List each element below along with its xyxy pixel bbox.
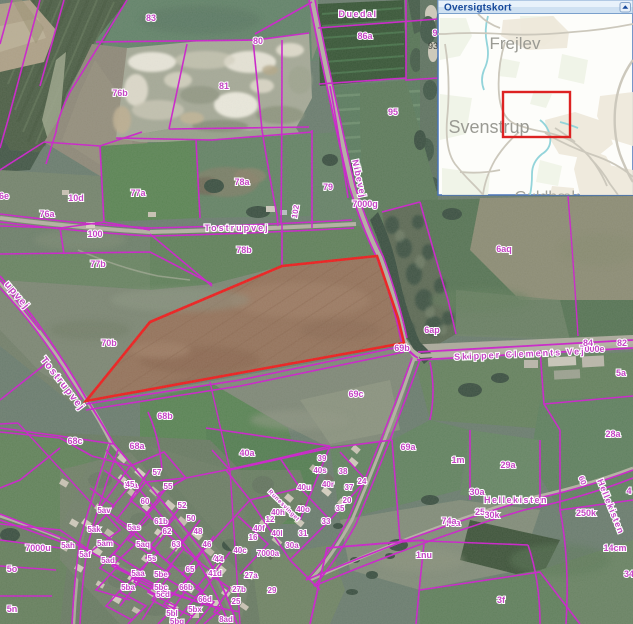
svg-text:7000a: 7000a (257, 549, 280, 558)
svg-text:14cm: 14cm (603, 543, 626, 553)
svg-text:81: 81 (219, 81, 229, 91)
svg-text:68b: 68b (157, 411, 173, 421)
svg-text:6aq: 6aq (496, 244, 512, 254)
svg-text:Duedal: Duedal (338, 9, 377, 19)
svg-text:68a: 68a (129, 441, 145, 451)
svg-text:78b: 78b (236, 245, 252, 255)
svg-text:82: 82 (617, 338, 627, 348)
svg-text:50: 50 (187, 514, 196, 523)
svg-text:5o: 5o (7, 564, 18, 574)
svg-text:74a: 74a (441, 516, 457, 526)
svg-text:86a: 86a (357, 31, 373, 41)
svg-text:83: 83 (146, 13, 156, 23)
svg-text:31: 31 (299, 529, 308, 538)
svg-text:63: 63 (172, 540, 181, 549)
svg-text:5as: 5as (127, 523, 141, 532)
svg-text:6e: 6e (0, 191, 9, 201)
svg-text:16: 16 (249, 533, 258, 542)
svg-text:Oversigtskort: Oversigtskort (444, 3, 512, 14)
svg-text:Svenstrup: Svenstrup (448, 117, 529, 137)
svg-text:55: 55 (164, 482, 173, 491)
svg-text:48: 48 (194, 527, 203, 536)
svg-text:24: 24 (358, 477, 367, 486)
svg-text:1m: 1m (451, 455, 464, 465)
svg-text:Hellekisten: Hellekisten (484, 495, 548, 505)
svg-text:40o: 40o (296, 505, 310, 514)
svg-text:7000g: 7000g (352, 199, 378, 209)
svg-text:27a: 27a (244, 571, 258, 580)
svg-text:40a: 40a (239, 448, 255, 458)
svg-text:57: 57 (153, 468, 162, 477)
svg-text:25: 25 (232, 597, 241, 606)
svg-text:61b: 61b (154, 517, 168, 526)
svg-text:40l: 40l (271, 529, 282, 538)
svg-text:44: 44 (215, 555, 224, 564)
svg-text:5aq: 5aq (136, 540, 150, 549)
svg-text:52: 52 (178, 501, 187, 510)
svg-text:5bx: 5bx (188, 605, 202, 614)
svg-text:66d: 66d (198, 595, 212, 604)
svg-text:65: 65 (186, 565, 195, 574)
svg-text:28a: 28a (605, 429, 621, 439)
svg-text:5ad: 5ad (101, 556, 115, 565)
svg-text:69b: 69b (394, 343, 410, 353)
svg-text:7000u: 7000u (25, 543, 51, 553)
svg-text:5ah: 5ah (61, 541, 75, 550)
svg-text:60: 60 (141, 497, 150, 506)
svg-text:37: 37 (345, 483, 354, 492)
svg-text:76b: 76b (112, 88, 128, 98)
svg-text:77b: 77b (90, 259, 106, 269)
svg-text:41d: 41d (208, 569, 222, 578)
svg-text:79: 79 (323, 182, 333, 192)
svg-text:250k: 250k (576, 508, 597, 518)
svg-text:77a: 77a (130, 188, 146, 198)
svg-text:5bq: 5bq (170, 617, 184, 624)
svg-text:5n: 5n (7, 604, 18, 614)
svg-text:80: 80 (253, 36, 263, 46)
svg-text:30a: 30a (285, 541, 299, 550)
svg-text:93: 93 (428, 41, 438, 51)
svg-text:76a: 76a (39, 209, 55, 219)
svg-text:5aa: 5aa (131, 569, 145, 578)
svg-text:29: 29 (268, 586, 277, 595)
svg-text:39: 39 (318, 454, 327, 463)
svg-text:10d: 10d (68, 193, 84, 203)
svg-text:8ad: 8ad (219, 615, 233, 624)
svg-text:27b: 27b (232, 585, 246, 594)
svg-text:38: 38 (339, 467, 348, 476)
svg-text:33: 33 (322, 517, 331, 526)
svg-text:69a: 69a (400, 442, 416, 452)
svg-text:4: 4 (626, 486, 631, 496)
svg-text:40c: 40c (233, 546, 247, 555)
svg-text:1nu: 1nu (416, 550, 432, 560)
svg-text:35: 35 (336, 504, 345, 513)
svg-text:66b: 66b (179, 583, 193, 592)
svg-text:5a: 5a (616, 368, 627, 378)
svg-text:5av: 5av (97, 506, 111, 515)
svg-text:Frejlev: Frejlev (489, 34, 541, 53)
svg-text:46: 46 (203, 540, 212, 549)
svg-text:100: 100 (87, 229, 102, 239)
svg-text:6ap: 6ap (424, 325, 440, 335)
svg-text:40s: 40s (313, 466, 327, 475)
svg-text:5be: 5be (154, 570, 168, 579)
svg-text:62: 62 (163, 527, 172, 536)
svg-text:40u: 40u (297, 483, 311, 492)
svg-text:29a: 29a (500, 460, 516, 470)
svg-text:12: 12 (266, 515, 275, 524)
svg-text:70b: 70b (101, 338, 117, 348)
svg-text:3f: 3f (497, 595, 506, 605)
svg-text:5ba: 5ba (121, 583, 135, 592)
svg-text:9: 9 (432, 28, 437, 38)
svg-text:45: 45 (126, 480, 135, 489)
svg-text:Tostrupvej: Tostrupvej (204, 223, 269, 233)
svg-text:40r: 40r (322, 480, 334, 489)
svg-text:5am: 5am (97, 539, 113, 548)
svg-text:5s: 5s (148, 554, 157, 563)
svg-text:34: 34 (624, 569, 633, 579)
svg-text:95: 95 (388, 107, 398, 117)
svg-text:40f: 40f (253, 524, 265, 533)
svg-text:5ak: 5ak (87, 525, 101, 534)
svg-text:69c: 69c (348, 389, 363, 399)
svg-text:30k: 30k (484, 510, 500, 520)
svg-text:20: 20 (343, 496, 352, 505)
svg-text:78a: 78a (234, 177, 250, 187)
svg-text:5cd: 5cd (156, 590, 170, 599)
svg-text:5af: 5af (79, 550, 91, 559)
svg-text:68c: 68c (67, 436, 82, 446)
